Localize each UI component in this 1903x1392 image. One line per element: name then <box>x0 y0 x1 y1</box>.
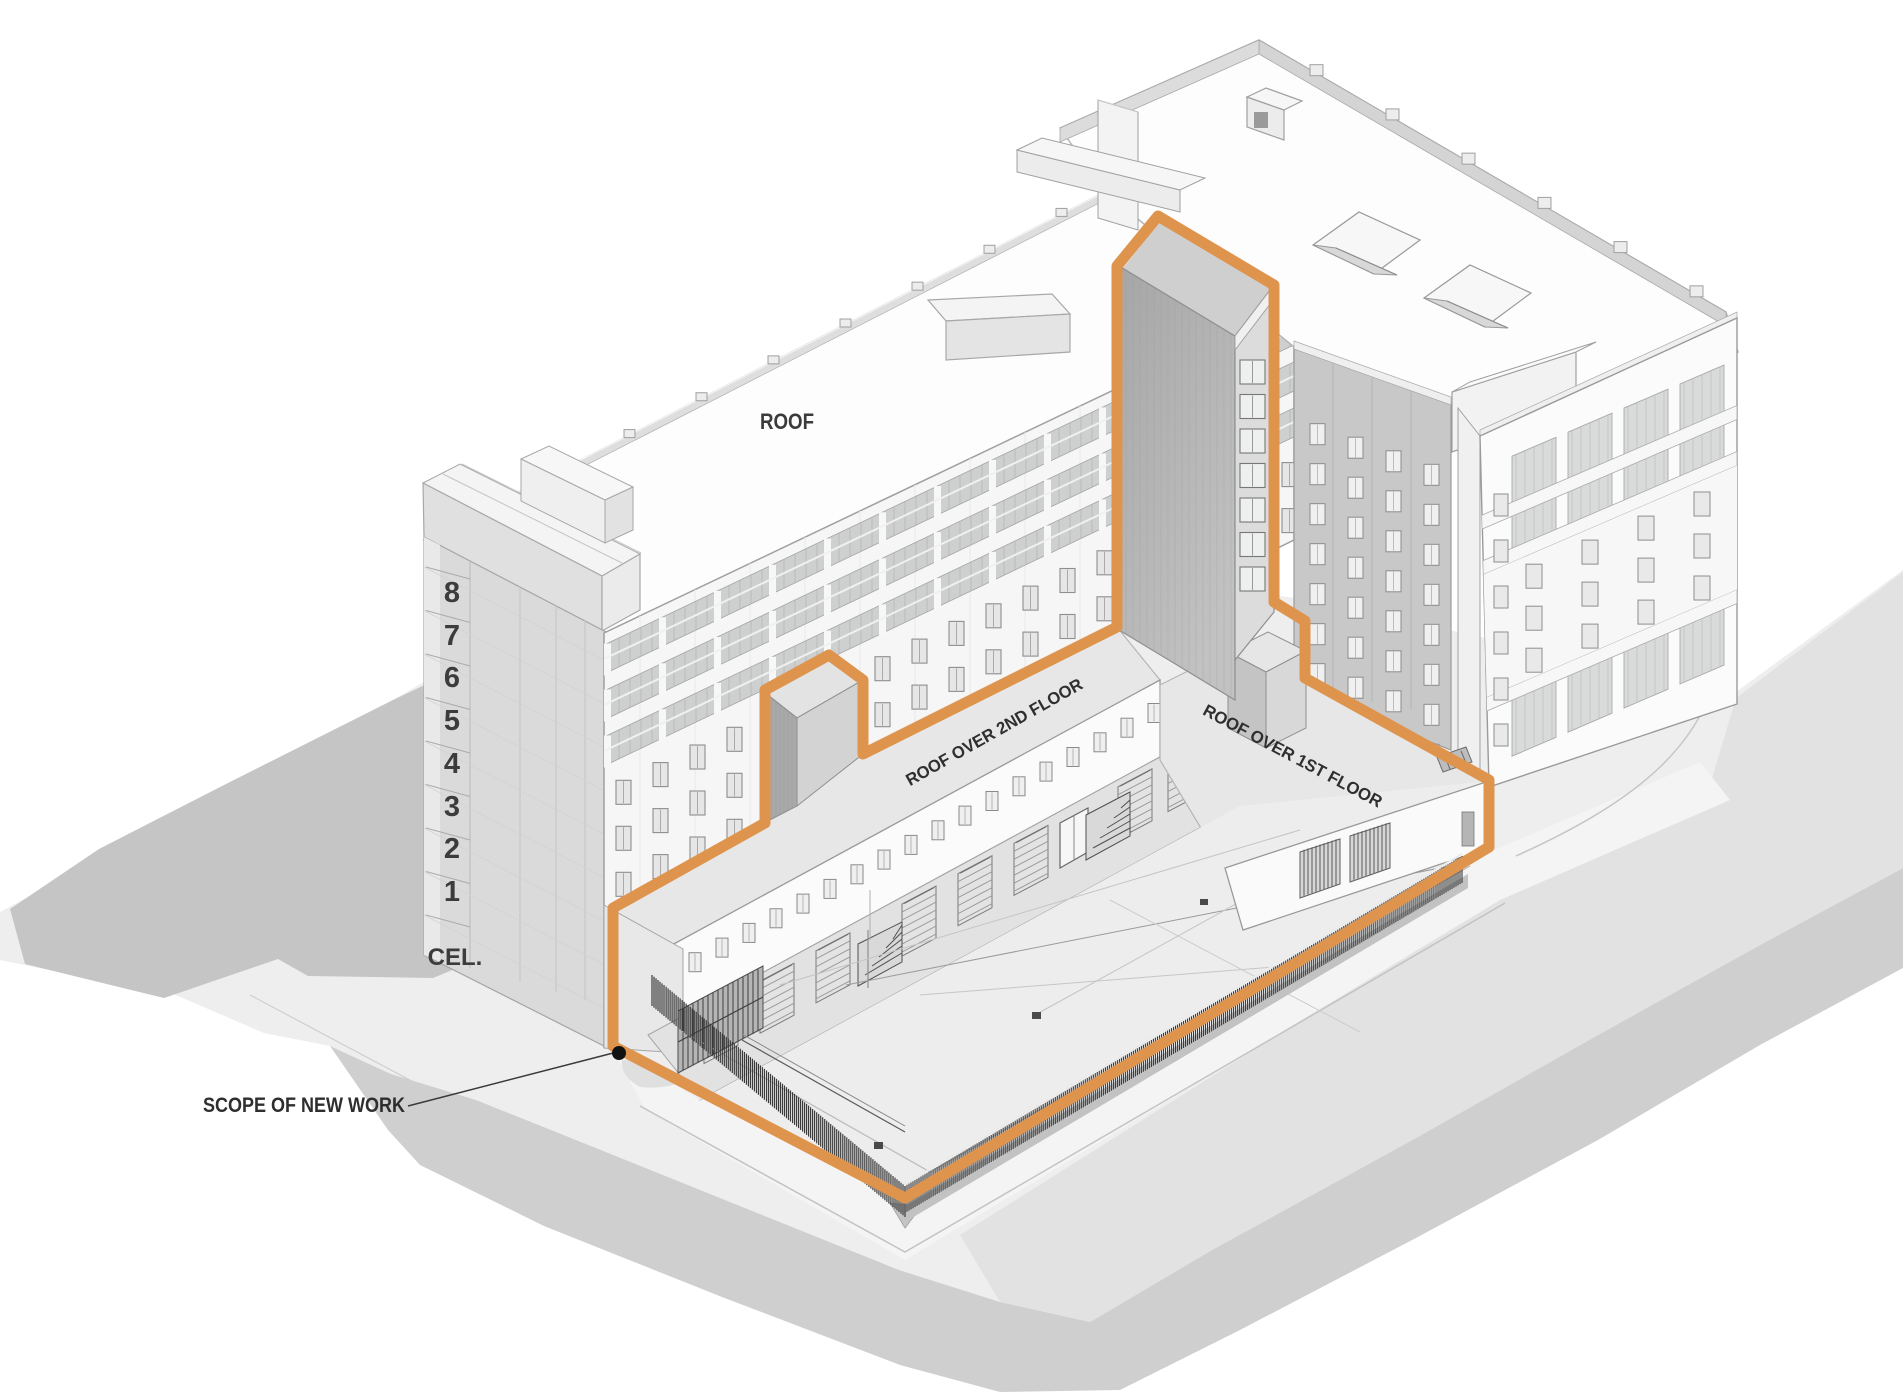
svg-text:ROOF: ROOF <box>760 409 814 434</box>
svg-text:7: 7 <box>444 620 460 652</box>
svg-text:SCOPE OF NEW WORK: SCOPE OF NEW WORK <box>203 1094 405 1117</box>
svg-text:3: 3 <box>444 791 460 823</box>
svg-text:4: 4 <box>444 748 460 780</box>
svg-text:6: 6 <box>444 662 460 694</box>
svg-text:1: 1 <box>444 876 460 908</box>
svg-text:8: 8 <box>444 577 460 609</box>
svg-text:5: 5 <box>444 705 460 737</box>
svg-text:2: 2 <box>444 833 460 865</box>
svg-text:CEL.: CEL. <box>428 944 483 971</box>
